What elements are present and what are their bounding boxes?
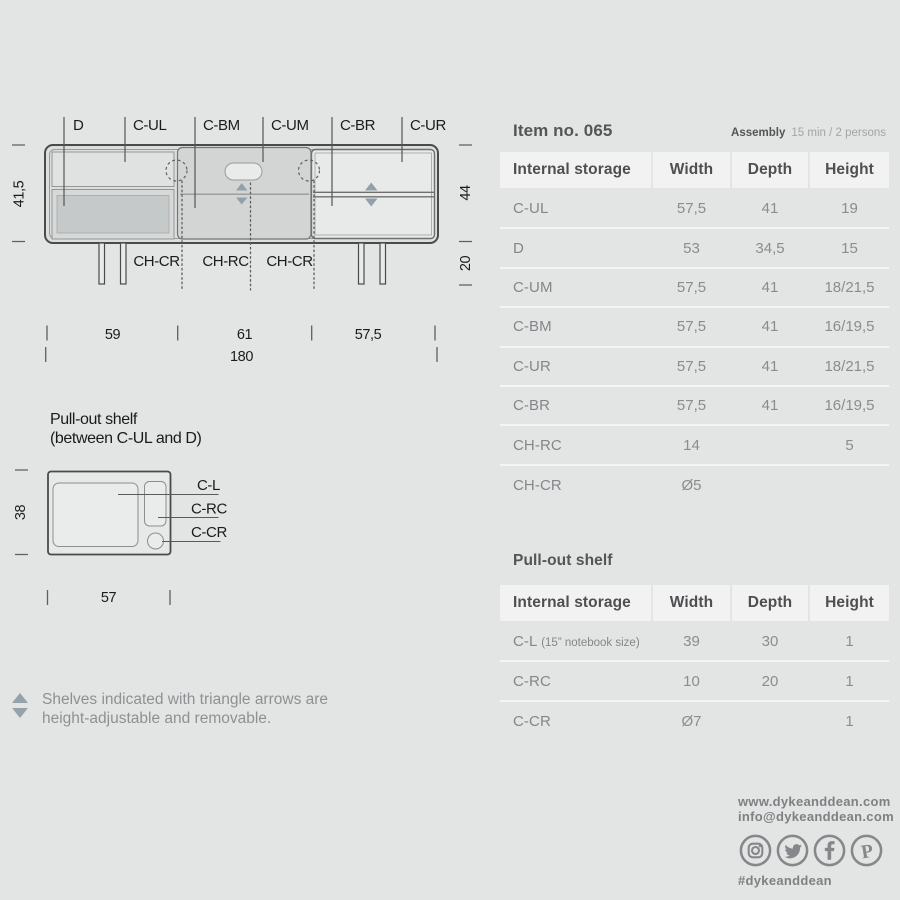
shelf-drawing-subtitle: (between C-UL and D) <box>50 430 202 447</box>
dim-internal-height: 41,5 <box>11 180 27 207</box>
row-name: C-RC <box>500 673 651 690</box>
shelf-label: C-L <box>197 477 220 494</box>
row-depth: 41 <box>732 318 808 335</box>
compartment-label: C-BR <box>340 117 376 134</box>
shelf-hole-c-cr <box>148 533 164 549</box>
row-height: 15 <box>810 240 889 257</box>
hashtag: #dykeanddean <box>738 873 898 888</box>
svg-text:P: P <box>860 841 875 864</box>
compartment-c-ul <box>52 152 174 187</box>
row-height: 5 <box>810 437 889 454</box>
spec-table-header: Internal storage Width Depth Height <box>500 152 889 188</box>
compartment-label: C-UL <box>133 117 166 134</box>
shelf-table-title: Pull-out shelf <box>513 552 613 570</box>
facebook-icon[interactable] <box>812 833 847 868</box>
row-height: 19 <box>810 200 889 217</box>
shelf-table-rows: C-L (15” notebook size) 39 30 1 C-RC 10 … <box>500 623 889 741</box>
spec-table-rows: C-UL 57,5 41 19 D 53 34,5 15 C-UM 57,5 4… <box>500 190 889 505</box>
dim-section-width: 57,5 <box>355 327 382 343</box>
compartment-label: C-BM <box>203 117 240 134</box>
table-row: C-BR 57,5 41 16/19,5 <box>500 387 889 426</box>
shelf-table-header: Internal storage Width Depth Height <box>500 585 889 621</box>
row-width: 53 <box>653 240 730 257</box>
website-url: www.dykeanddean.com <box>738 794 898 809</box>
footer: www.dykeanddean.com info@dykeanddean.com… <box>738 794 898 888</box>
row-width: 57,5 <box>653 397 730 414</box>
table-row: C-UM 57,5 41 18/21,5 <box>500 269 889 308</box>
row-height: 16/19,5 <box>810 318 889 335</box>
dim-total-width: 180 <box>230 349 253 365</box>
pullout-shelf-drawing: Pull-out shelf (between C-UL and D) C-L … <box>13 411 228 606</box>
row-width: Ø7 <box>653 713 730 730</box>
row-height: 18/21,5 <box>810 279 889 296</box>
row-name: C-BM <box>500 318 651 335</box>
row-width: 39 <box>653 633 730 650</box>
compartment-label: D <box>73 117 84 134</box>
note-arrow-icons <box>12 693 28 728</box>
row-name: C-CR <box>500 713 651 730</box>
instagram-icon[interactable] <box>738 833 773 868</box>
note-text: Shelves indicated with triangle arrows a… <box>42 690 328 728</box>
dim-shelf-width: 57 <box>101 590 117 606</box>
dim-shelf-depth: 38 <box>13 505 29 521</box>
row-width: 57,5 <box>653 200 730 217</box>
cabinet-drawing: D C-UL C-BM C-UM C-BR C-UR CH-CR CH-RC C… <box>11 117 474 365</box>
drawer-d-front <box>57 196 169 234</box>
column-header-depth: Depth <box>732 152 808 188</box>
adjustable-shelf-note: Shelves indicated with triangle arrows a… <box>12 690 328 728</box>
hole-label: CH-CR <box>266 253 313 270</box>
row-name: C-UM <box>500 279 651 296</box>
row-width: Ø5 <box>653 477 730 494</box>
column-header-width: Width <box>653 585 730 621</box>
spec-tables: Item no. 065 Assembly15 min / 2 persons … <box>500 0 889 900</box>
row-name: C-UL <box>500 200 651 217</box>
leg <box>380 243 386 284</box>
table-row: C-L (15” notebook size) 39 30 1 <box>500 623 889 662</box>
table-row: C-UR 57,5 41 18/21,5 <box>500 348 889 387</box>
note-line-2: height-adjustable and removable. <box>42 709 328 728</box>
assembly-label: Assembly <box>731 127 785 139</box>
row-depth: 41 <box>732 358 808 375</box>
product-spec-sheet: { "drawing": { "compartment_labels": ["D… <box>0 0 900 900</box>
leg <box>121 243 127 284</box>
column-header-depth: Depth <box>732 585 808 621</box>
leg <box>99 243 105 284</box>
shelf-label: C-CR <box>191 524 227 541</box>
leg <box>359 243 365 284</box>
table-row: CH-CR Ø5 <box>500 466 889 505</box>
row-height: 18/21,5 <box>810 358 889 375</box>
row-width: 57,5 <box>653 318 730 335</box>
row-name: C-L (15” notebook size) <box>500 633 651 650</box>
row-height: 16/19,5 <box>810 397 889 414</box>
dim-leg-height: 20 <box>458 256 474 272</box>
row-depth: 41 <box>732 200 808 217</box>
row-name-note: (15” notebook size) <box>541 637 639 649</box>
row-name-code: C-L <box>513 633 537 650</box>
table-row: C-BM 57,5 41 16/19,5 <box>500 308 889 347</box>
compartment-label: C-UM <box>271 117 309 134</box>
table-row: D 53 34,5 15 <box>500 229 889 268</box>
table-row: C-RC 10 20 1 <box>500 662 889 701</box>
compartment-label: C-UR <box>410 117 446 134</box>
row-name: C-BR <box>500 397 651 414</box>
hole-label: CH-RC <box>202 253 249 270</box>
right-module <box>312 150 435 239</box>
shelf-slot-c-rc <box>145 482 167 527</box>
dim-section-width: 61 <box>237 327 253 343</box>
table-row: C-UL 57,5 41 19 <box>500 190 889 229</box>
row-width: 57,5 <box>653 279 730 296</box>
shelf-drawing-title: Pull-out shelf <box>50 411 138 428</box>
twitter-icon[interactable] <box>775 833 810 868</box>
row-depth: 20 <box>732 673 808 690</box>
up-arrow-icon <box>12 693 28 703</box>
item-number-title: Item no. 065 <box>513 121 612 141</box>
down-arrow-icon <box>12 708 28 718</box>
door-handle-cutout <box>225 163 262 180</box>
sliding-door <box>178 148 312 240</box>
column-header-width: Width <box>653 152 730 188</box>
table-row: C-CR Ø7 1 <box>500 702 889 741</box>
social-icons: P <box>738 833 898 868</box>
table-row: CH-RC 14 5 <box>500 426 889 465</box>
row-width: 14 <box>653 437 730 454</box>
row-name: C-UR <box>500 358 651 375</box>
technical-drawing: D C-UL C-BM C-UM C-BR C-UR CH-CR CH-RC C… <box>0 0 500 660</box>
row-depth: 41 <box>732 279 808 296</box>
column-header-height: Height <box>810 152 889 188</box>
spec-title-row: Item no. 065 Assembly15 min / 2 persons <box>500 121 889 141</box>
row-height: 1 <box>810 633 889 650</box>
dim-body-height: 44 <box>458 185 474 201</box>
column-header-internal-storage: Internal storage <box>500 152 651 188</box>
dim-section-width: 59 <box>105 327 121 343</box>
column-header-internal-storage: Internal storage <box>500 585 651 621</box>
row-depth: 30 <box>732 633 808 650</box>
pinterest-icon[interactable]: P <box>849 833 884 868</box>
row-depth: 41 <box>732 397 808 414</box>
email-address: info@dykeanddean.com <box>738 809 898 824</box>
shelf-compartment-c-l <box>53 483 138 547</box>
row-name: D <box>500 240 651 257</box>
assembly-info: Assembly15 min / 2 persons <box>731 127 886 139</box>
row-height: 1 <box>810 713 889 730</box>
column-header-height: Height <box>810 585 889 621</box>
row-width: 57,5 <box>653 358 730 375</box>
row-width: 10 <box>653 673 730 690</box>
row-height: 1 <box>810 673 889 690</box>
hole-label: CH-CR <box>133 253 180 270</box>
shelf-label: C-RC <box>191 501 227 518</box>
row-depth: 34,5 <box>732 240 808 257</box>
row-name: CH-RC <box>500 437 651 454</box>
note-line-1: Shelves indicated with triangle arrows a… <box>42 690 328 709</box>
row-name: CH-CR <box>500 477 651 494</box>
assembly-value: 15 min / 2 persons <box>791 127 886 139</box>
